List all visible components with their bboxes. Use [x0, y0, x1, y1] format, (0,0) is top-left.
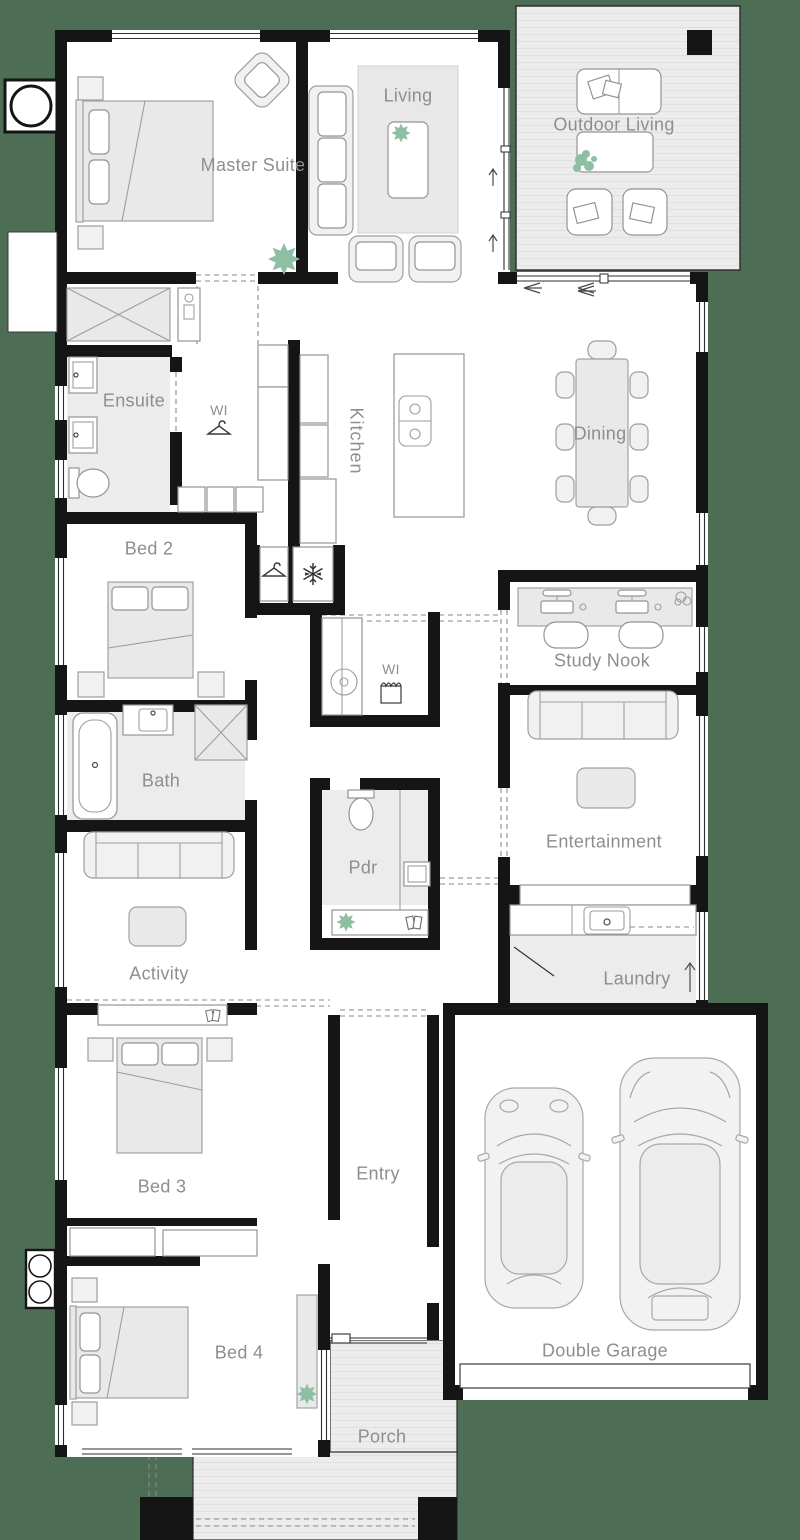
room-label-pdr: Pdr: [349, 858, 378, 879]
laundry-door: [696, 912, 708, 1000]
room-label-master-suite: Master Suite: [197, 153, 309, 177]
garage-door: [460, 1364, 750, 1388]
kitchen-island: [394, 354, 464, 517]
room-label-bed-3: Bed 3: [138, 1177, 187, 1198]
plant-icon: [297, 1384, 318, 1405]
floor-plan: Master Suite Living Outdoor Living Ensui…: [0, 0, 800, 1540]
exterior-tanks: [26, 1250, 55, 1308]
room-label-kitchen: Kitchen: [346, 407, 367, 474]
plant-icon: [268, 243, 300, 275]
room-label-porch: Porch: [358, 1427, 407, 1448]
room-label-ensuite: Ensuite: [103, 391, 165, 412]
room-label-wi-linen: WI: [382, 661, 400, 677]
plant-icon: [336, 912, 355, 931]
room-label-activity: Activity: [129, 964, 188, 985]
linen-closet: [260, 547, 288, 601]
room-label-bath: Bath: [142, 771, 180, 792]
room-label-entry: Entry: [356, 1164, 400, 1185]
plant-icon: [391, 123, 410, 142]
room-label-double-garage: Double Garage: [542, 1341, 668, 1362]
room-label-dining: Dining: [574, 424, 627, 445]
floor-plan-drawing: [0, 0, 800, 1540]
water-tank: [5, 80, 57, 132]
room-label-living: Living: [384, 86, 433, 107]
car-small: [477, 1088, 590, 1308]
exterior-pad: [8, 232, 57, 332]
room-label-study-nook: Study Nook: [554, 651, 650, 672]
room-label-laundry: Laundry: [603, 969, 670, 990]
deck-column: [687, 30, 712, 55]
room-label-bed-4: Bed 4: [215, 1343, 264, 1364]
room-label-outdoor-living: Outdoor Living: [553, 115, 674, 136]
porch-post: [418, 1497, 457, 1540]
car-large: [611, 1058, 748, 1330]
room-label-entertainment: Entertainment: [546, 832, 662, 853]
room-label-wi-robe: WI: [210, 402, 228, 418]
room-label-bed-2: Bed 2: [125, 539, 174, 560]
master-robe: [67, 288, 200, 341]
porch-post: [140, 1497, 193, 1540]
